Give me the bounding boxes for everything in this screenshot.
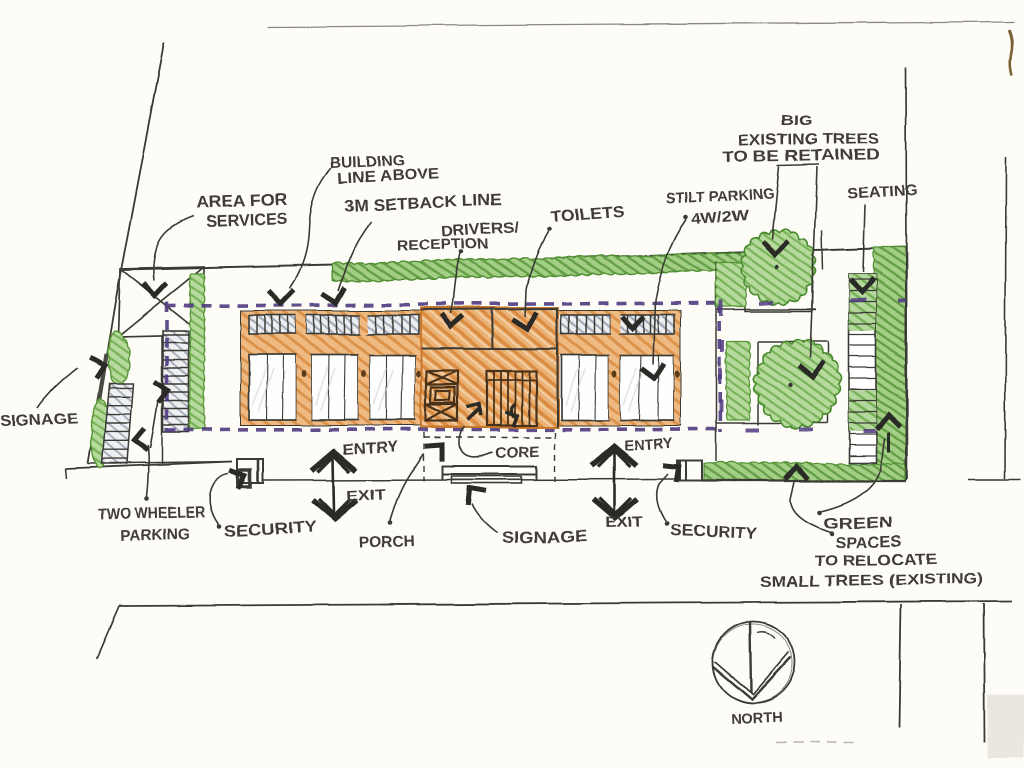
svg-text:SIGNAGE: SIGNAGE bbox=[1, 410, 79, 430]
svg-text:BIG: BIG bbox=[780, 113, 812, 130]
svg-text:PORCH: PORCH bbox=[359, 533, 416, 552]
svg-text:SECURITY: SECURITY bbox=[224, 519, 317, 540]
svg-text:SIGNAGE: SIGNAGE bbox=[502, 528, 587, 547]
svg-text:TO RELOCATE: TO RELOCATE bbox=[815, 551, 937, 570]
svg-text:SERVICES: SERVICES bbox=[206, 210, 289, 231]
svg-text:SPACES: SPACES bbox=[835, 534, 902, 552]
svg-text:CORE: CORE bbox=[495, 443, 540, 462]
svg-text:EXIT: EXIT bbox=[346, 486, 386, 505]
svg-text:EXIT: EXIT bbox=[605, 514, 644, 532]
svg-text:GREEN: GREEN bbox=[823, 515, 893, 533]
svg-text:ENTRY: ENTRY bbox=[623, 435, 673, 455]
svg-text:TO BE RETAINED: TO BE RETAINED bbox=[722, 146, 880, 166]
svg-text:AREA FOR: AREA FOR bbox=[196, 191, 289, 212]
svg-text:NORTH: NORTH bbox=[731, 709, 784, 728]
svg-text:SECURITY: SECURITY bbox=[670, 522, 758, 543]
svg-text:RECEPTION: RECEPTION bbox=[397, 236, 489, 254]
svg-text:PARKING: PARKING bbox=[121, 526, 191, 545]
